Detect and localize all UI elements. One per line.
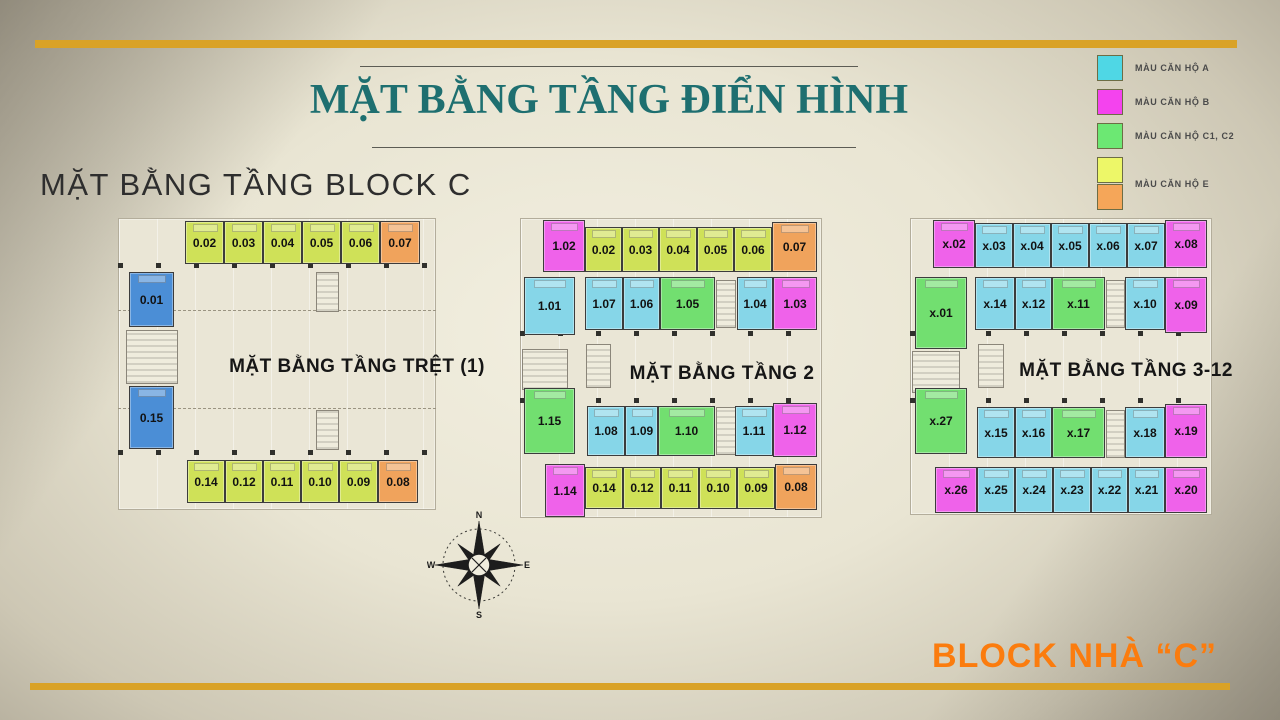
unit-1.07: 1.07 — [585, 277, 623, 330]
unit-x.12: x.12 — [1015, 277, 1052, 330]
unit-0.11: 0.11 — [661, 467, 699, 509]
unit-x.21: x.21 — [1128, 467, 1165, 513]
unit-1.06: 1.06 — [623, 277, 660, 330]
unit-x.05: x.05 — [1051, 223, 1089, 268]
unit-0.06: 0.06 — [341, 221, 380, 264]
unit-x.16: x.16 — [1015, 407, 1052, 458]
unit-0.12: 0.12 — [623, 467, 661, 509]
service-core — [316, 272, 339, 312]
unit-x.01: x.01 — [915, 277, 967, 349]
service-core — [522, 349, 568, 390]
unit-x.25: x.25 — [977, 467, 1015, 513]
plan-label-tang2: MẶT BẰNG TẦNG 2 — [630, 363, 815, 385]
unit-x.10: x.10 — [1125, 277, 1165, 330]
service-core — [1106, 280, 1125, 328]
unit-x.11: x.11 — [1052, 277, 1105, 330]
unit-0.08: 0.08 — [775, 464, 817, 510]
plan-label-tang3-12: MẶT BẰNG TẦNG 3-12 — [1019, 360, 1233, 382]
unit-0.02: 0.02 — [185, 221, 224, 264]
unit-0.15: 0.15 — [129, 386, 174, 449]
unit-1.12: 1.12 — [773, 403, 817, 457]
unit-x.02: x.02 — [933, 220, 975, 268]
service-core — [978, 344, 1004, 388]
unit-x.07: x.07 — [1127, 223, 1165, 268]
compass-w-label: W — [427, 560, 436, 570]
unit-x.09: x.09 — [1165, 277, 1207, 333]
floor-plans: 0.020.030.040.050.060.070.010.150.140.12… — [0, 0, 1280, 720]
unit-1.08: 1.08 — [587, 406, 625, 456]
compass-rose-icon: N E S W — [427, 509, 531, 621]
unit-x.15: x.15 — [977, 407, 1015, 458]
unit-0.05: 0.05 — [302, 221, 341, 264]
compass-s-label: S — [476, 610, 482, 620]
unit-0.06: 0.06 — [734, 227, 772, 272]
unit-x.27: x.27 — [915, 388, 967, 454]
unit-0.05: 0.05 — [697, 227, 734, 272]
unit-x.26: x.26 — [935, 467, 977, 513]
unit-1.11: 1.11 — [735, 406, 773, 456]
unit-0.08: 0.08 — [378, 460, 418, 503]
unit-0.01: 0.01 — [129, 272, 174, 327]
unit-0.09: 0.09 — [339, 460, 378, 503]
plan-label-tret: MẶT BẰNG TẦNG TRỆT (1) — [229, 356, 485, 378]
unit-x.06: x.06 — [1089, 223, 1127, 268]
compass-e-label: E — [524, 560, 530, 570]
unit-0.04: 0.04 — [659, 227, 697, 272]
unit-1.02: 1.02 — [543, 220, 585, 272]
unit-x.24: x.24 — [1015, 467, 1053, 513]
unit-x.03: x.03 — [975, 223, 1013, 268]
unit-1.01: 1.01 — [524, 277, 575, 335]
unit-x.08: x.08 — [1165, 220, 1207, 268]
column-ticks — [118, 450, 436, 455]
block-name-footer: BLOCK NHÀ “C” — [932, 637, 1217, 676]
unit-0.11: 0.11 — [263, 460, 301, 503]
unit-1.15: 1.15 — [524, 388, 575, 454]
service-core — [912, 351, 960, 393]
service-core — [126, 330, 178, 384]
unit-x.14: x.14 — [975, 277, 1015, 330]
unit-0.14: 0.14 — [585, 467, 623, 509]
unit-x.04: x.04 — [1013, 223, 1051, 268]
unit-x.20: x.20 — [1165, 467, 1207, 513]
unit-1.04: 1.04 — [737, 277, 773, 330]
unit-0.14: 0.14 — [187, 460, 225, 503]
unit-0.07: 0.07 — [772, 222, 817, 272]
unit-0.10: 0.10 — [699, 467, 737, 509]
unit-x.17: x.17 — [1052, 407, 1105, 458]
unit-1.10: 1.10 — [658, 406, 715, 456]
unit-x.23: x.23 — [1053, 467, 1091, 513]
unit-1.09: 1.09 — [625, 406, 658, 456]
unit-x.18: x.18 — [1125, 407, 1165, 458]
unit-0.02: 0.02 — [585, 227, 622, 272]
unit-0.03: 0.03 — [622, 227, 659, 272]
service-core — [586, 344, 611, 388]
unit-0.07: 0.07 — [380, 221, 420, 264]
service-core — [716, 280, 736, 328]
unit-0.03: 0.03 — [224, 221, 263, 264]
unit-1.03: 1.03 — [773, 277, 817, 330]
unit-x.22: x.22 — [1091, 467, 1128, 513]
unit-0.04: 0.04 — [263, 221, 302, 264]
unit-1.05: 1.05 — [660, 277, 715, 330]
unit-0.10: 0.10 — [301, 460, 339, 503]
compass-n-label: N — [476, 510, 483, 520]
service-core — [316, 410, 339, 450]
unit-1.14: 1.14 — [545, 464, 585, 517]
unit-0.12: 0.12 — [225, 460, 263, 503]
service-core — [1106, 410, 1125, 458]
unit-x.19: x.19 — [1165, 404, 1207, 458]
unit-0.09: 0.09 — [737, 467, 775, 509]
service-core — [716, 407, 736, 455]
slide: MẶT BẰNG TẦNG ĐIỂN HÌNH MẶT BẰNG TẦNG BL… — [0, 0, 1280, 720]
